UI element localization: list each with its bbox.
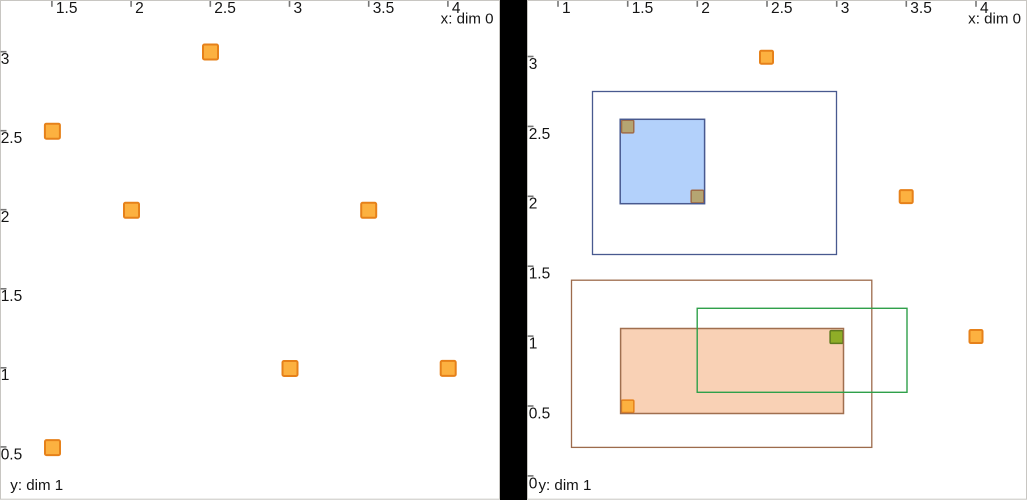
- svg-text:3.5: 3.5: [910, 0, 932, 17]
- svg-text:1: 1: [529, 336, 538, 353]
- svg-text:3.5: 3.5: [373, 0, 395, 17]
- svg-text:2.5: 2.5: [529, 126, 551, 143]
- svg-text:1: 1: [1, 367, 10, 384]
- svg-text:1.5: 1.5: [56, 0, 78, 17]
- svg-text:2: 2: [701, 0, 710, 17]
- svg-text:2.5: 2.5: [771, 0, 793, 17]
- svg-text:2.5: 2.5: [214, 0, 236, 17]
- svg-text:3: 3: [1, 51, 10, 68]
- svg-text:3: 3: [529, 56, 538, 73]
- svg-text:x: dim 0: x: dim 0: [968, 11, 1021, 28]
- svg-text:2: 2: [135, 0, 144, 17]
- svg-text:y: dim 1: y: dim 1: [539, 477, 592, 494]
- svg-text:2: 2: [529, 196, 538, 213]
- svg-text:2: 2: [1, 209, 10, 226]
- svg-text:0: 0: [529, 475, 538, 492]
- svg-text:0.5: 0.5: [1, 446, 23, 463]
- svg-text:x: dim 0: x: dim 0: [441, 11, 494, 28]
- svg-text:3: 3: [841, 0, 850, 17]
- svg-text:2.5: 2.5: [1, 130, 23, 147]
- svg-text:1.5: 1.5: [529, 266, 551, 283]
- svg-text:1.5: 1.5: [632, 0, 654, 17]
- svg-text:1: 1: [562, 0, 571, 17]
- svg-text:1.5: 1.5: [1, 288, 23, 305]
- svg-text:y: dim 1: y: dim 1: [10, 477, 63, 494]
- svg-text:3: 3: [294, 0, 303, 17]
- svg-text:0.5: 0.5: [529, 405, 551, 422]
